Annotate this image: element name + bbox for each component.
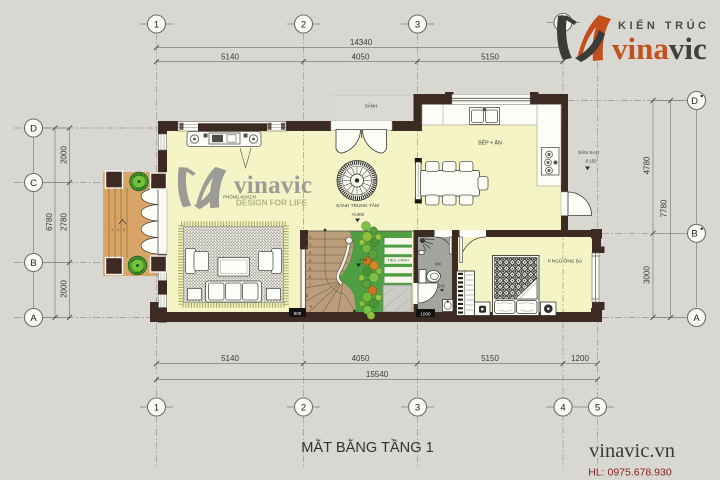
svg-text:3: 3 [415, 19, 420, 30]
svg-text:900: 900 [294, 311, 302, 316]
svg-text:6: 6 [309, 275, 311, 279]
svg-text:BẾP + ĂN: BẾP + ĂN [478, 140, 502, 147]
svg-text:3: 3 [309, 251, 311, 255]
svg-text:P.NGỦ ÔNG BÀ: P.NGỦ ÔNG BÀ [548, 258, 583, 265]
svg-text:DESIGN FOR LIFE: DESIGN FOR LIFE [236, 199, 308, 208]
svg-text:SẢNH: SẢNH [365, 103, 378, 109]
svg-text:14340: 14340 [350, 38, 373, 47]
svg-text:3: 3 [123, 228, 125, 232]
svg-text:B: B [30, 258, 36, 269]
svg-text:MẰT BẰNG TẦNG 1: MẰT BẰNG TẦNG 1 [301, 438, 433, 456]
svg-text:4: 4 [560, 402, 565, 413]
svg-text:2: 2 [117, 228, 119, 232]
svg-text:SẢNH TRUNG TÂM: SẢNH TRUNG TÂM [336, 202, 379, 209]
svg-text:2: 2 [301, 402, 306, 413]
svg-text:C: C [30, 178, 37, 189]
svg-text:vinavic: vinavic [612, 31, 707, 66]
svg-text:5140: 5140 [221, 53, 239, 62]
svg-text:1: 1 [111, 228, 113, 232]
svg-text:15540: 15540 [366, 370, 389, 379]
svg-text:5150: 5150 [481, 53, 499, 62]
svg-text:PHÒNG KHÁCH: PHÒNG KHÁCH [223, 195, 256, 200]
svg-text:5150: 5150 [481, 354, 499, 363]
svg-text:4: 4 [309, 259, 311, 263]
svg-text:2780: 2780 [60, 213, 69, 231]
svg-text:2: 2 [301, 19, 306, 30]
svg-text:-0.150: -0.150 [585, 159, 598, 164]
svg-text:7: 7 [309, 283, 311, 287]
svg-text:-1.50: -1.50 [358, 257, 368, 262]
svg-text:B: B [691, 229, 697, 240]
svg-text:8: 8 [306, 294, 308, 298]
svg-text:1: 1 [154, 402, 159, 413]
svg-text:2000: 2000 [60, 280, 69, 298]
svg-text:5140: 5140 [221, 354, 239, 363]
svg-text:1000: 1000 [420, 311, 431, 316]
svg-text:HL: 0975.678.930: HL: 0975.678.930 [588, 467, 672, 479]
svg-text:A: A [30, 313, 37, 324]
svg-text:2000: 2000 [60, 146, 69, 164]
svg-text:5: 5 [309, 267, 311, 271]
svg-text:A: A [693, 313, 700, 324]
svg-text:9: 9 [310, 305, 312, 309]
svg-text:4050: 4050 [352, 53, 370, 62]
svg-text:1: 1 [309, 235, 311, 239]
svg-text:1200: 1200 [571, 354, 589, 363]
svg-text:4050: 4050 [352, 354, 370, 363]
svg-text:4780: 4780 [643, 156, 652, 174]
svg-text:2: 2 [309, 243, 311, 247]
svg-text:3000: 3000 [643, 266, 652, 284]
svg-text:7780: 7780 [660, 199, 669, 217]
svg-text:D: D [30, 123, 37, 134]
svg-text:1: 1 [154, 19, 159, 30]
svg-text:WC: WC [435, 262, 443, 267]
svg-text:6780: 6780 [45, 213, 54, 231]
svg-text:vinavic.vn: vinavic.vn [589, 440, 675, 462]
svg-text:+0.000: +0.000 [351, 212, 365, 217]
svg-text:5: 5 [595, 402, 600, 413]
svg-text:3: 3 [415, 402, 420, 413]
svg-text:TIỂU CẢNH: TIỂU CẢNH [387, 258, 409, 263]
svg-text:D: D [691, 96, 698, 107]
svg-text:SÂN SAU: SÂN SAU [578, 149, 600, 156]
